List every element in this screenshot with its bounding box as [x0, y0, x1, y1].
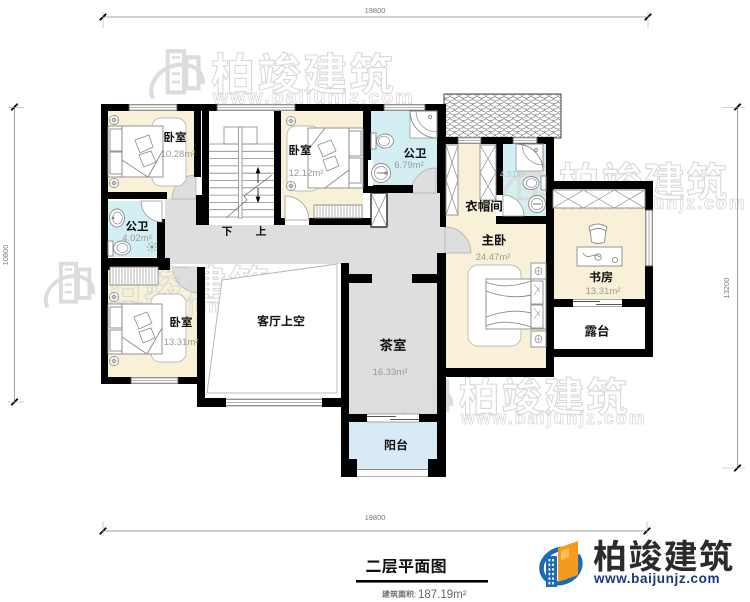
svg-text:13.31m²: 13.31m²: [164, 337, 199, 348]
svg-text:4.02m²: 4.02m²: [122, 233, 152, 244]
svg-text:4.31m²: 4.31m²: [500, 169, 527, 179]
svg-text:24.47m²: 24.47m²: [476, 252, 511, 263]
svg-text:187.19m²: 187.19m²: [418, 589, 467, 601]
svg-text::: :: [414, 590, 416, 599]
svg-text:13.31m²: 13.31m²: [586, 286, 621, 297]
svg-text:6.79m²: 6.79m²: [394, 160, 424, 171]
svg-text:10800: 10800: [1, 245, 10, 266]
svg-text:12.12m²: 12.12m²: [289, 168, 324, 179]
svg-text:10.28m²: 10.28m²: [161, 149, 196, 160]
svg-text:www.baijunjz.com: www.baijunjz.com: [593, 571, 720, 586]
svg-text:19800: 19800: [365, 513, 386, 522]
svg-text:19800: 19800: [365, 6, 386, 15]
svg-text:13200: 13200: [722, 278, 731, 299]
svg-text:16.33m²: 16.33m²: [373, 367, 408, 378]
svg-text:www.baijunjz.com: www.baijunjz.com: [460, 408, 647, 428]
